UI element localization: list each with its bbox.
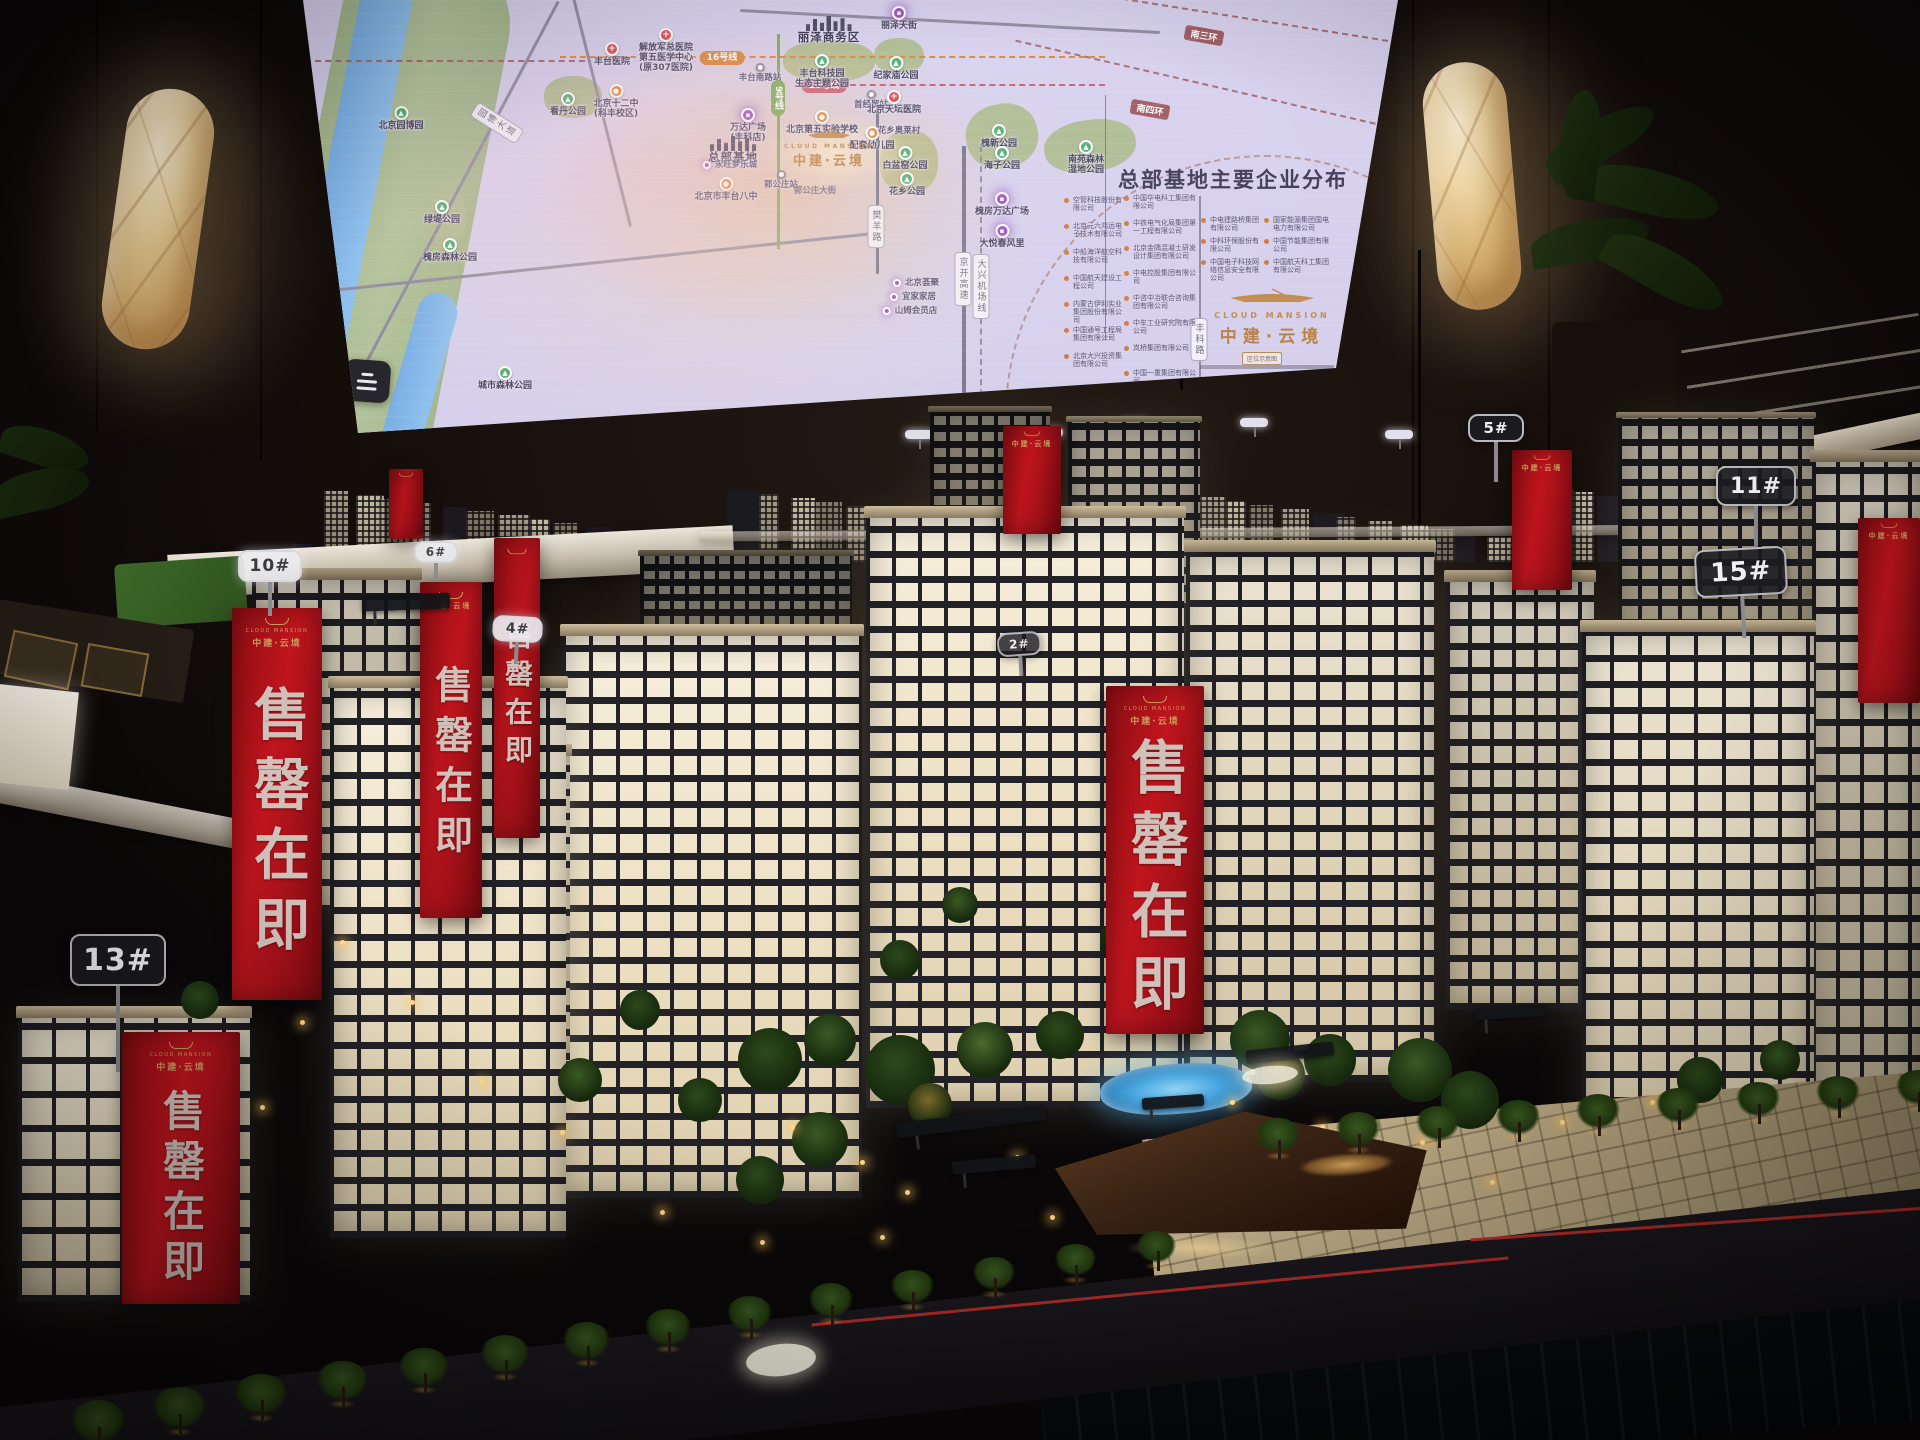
banner-brand-zh: 中建·云境 (1522, 463, 1563, 473)
palm-tree (1575, 1094, 1621, 1130)
garden-light (905, 1190, 910, 1195)
park-tree-icon: ▲ (394, 106, 408, 120)
map-label: 永旺梦乐城 (715, 160, 758, 170)
company-name: 北京金隅混凝土研发设计集团有限公司 (1133, 244, 1196, 260)
map-label: 海子公园 (984, 161, 1020, 171)
company-name: 中船海洋航空科技有限公司 (1073, 248, 1122, 264)
park-tree-icon: ▲ (815, 54, 829, 68)
company-name: 中国航天建设工程公司 (1073, 274, 1122, 290)
garden-light (560, 1130, 565, 1135)
map-label: 北京天坛医院 (867, 105, 921, 115)
company-name: 中电控股集团有限公司 (1133, 269, 1196, 285)
line-marker: 16号线 (700, 51, 745, 65)
ring-road-badge: 南三环 (1183, 25, 1224, 47)
bullet-dot-icon (1201, 260, 1206, 265)
company-list-item: 中电控股集团有限公司 (1124, 269, 1196, 285)
boat-icon (1226, 288, 1318, 304)
map-label: 绿堤公园 (424, 215, 460, 225)
company-name: 中国电子科技网络信息安全有限公司 (1210, 258, 1263, 282)
mall_s-marker: 宜家家居 (890, 292, 936, 302)
map-label: 北京市丰台八中 (694, 192, 757, 202)
garden-light (300, 1020, 305, 1025)
banner-brand-zh: 中建·云境 (1869, 531, 1910, 541)
garden-light (760, 1240, 765, 1245)
building-sign-2: 2# (997, 631, 1044, 678)
map-label: 花乡奥莱村 (878, 126, 921, 136)
company-name: 中国节能集团有限公司 (1273, 237, 1330, 253)
map-label: 北京荟聚 (905, 278, 939, 288)
company-name: 中电建路桥集团有限公司 (1210, 216, 1263, 232)
city-skyline-icon (710, 136, 756, 151)
garden-tree (181, 981, 219, 1019)
company-list-item: 中国一重集团有限公司 (1124, 369, 1196, 385)
company-name: 中科环保股份有限公司 (1210, 237, 1263, 253)
palm-tree (972, 1257, 1016, 1291)
park-tree-icon: ▲ (498, 366, 512, 380)
hosp-marker: +丰台医院 (594, 42, 630, 67)
map-label: 丰台科技园 生态主题公园 (795, 69, 849, 89)
mall-marker: ▪槐房万达广场 (975, 192, 1029, 217)
soldout-banner: CLOUD MANSION 中建·云境 售罄在即 (1106, 686, 1204, 1034)
garden-tree (1760, 1040, 1800, 1080)
building-sign-5: 5# (1468, 414, 1524, 482)
park-marker: ▲南苑森林 湿地公园 (1068, 140, 1104, 175)
palm-tree (1136, 1231, 1177, 1264)
shopping-icon (890, 293, 898, 301)
company-name: 中国通号工程局集团有限公司 (1073, 326, 1122, 342)
sales-center-scene: CLOUD MANSION 中建·云境 总部基地主要企业分布 CLOUD MAN… (0, 0, 1920, 1440)
ring-road-s3 (1112, 0, 1438, 50)
garden-light (1050, 1215, 1055, 1220)
palm-tree (152, 1387, 207, 1430)
park-marker: ▲绿堤公园 (424, 200, 460, 225)
garden-light (410, 1000, 415, 1005)
park-tree-icon: ▲ (561, 92, 575, 106)
map-label: 白盆窑公园 (882, 161, 927, 171)
company-list-item: 中国节能集团有限公司 (1264, 237, 1330, 253)
map-label: 宜家家居 (902, 292, 936, 302)
roadr-marker: 园博大道 (489, 96, 506, 150)
palm-tree (726, 1296, 773, 1333)
map-label: 南苑森林 湿地公园 (1068, 155, 1104, 175)
palm-tree (1054, 1244, 1097, 1277)
banner-message: 售罄在即 (1113, 737, 1197, 1025)
boat-icon (1534, 455, 1551, 460)
bullet-dot-icon (1124, 321, 1129, 326)
context-sign (1385, 430, 1413, 439)
boat-icon (265, 618, 289, 625)
building-sign-4: 4# (491, 615, 543, 666)
project-logo-zh: 中建·云境 (784, 150, 874, 169)
company-list-item: 中国通号工程局集团有限公司 (1064, 326, 1122, 342)
banner-brand-en: CLOUD MANSION (1124, 706, 1186, 712)
roadv-marker: 大兴机场线 (973, 254, 990, 319)
company-list-item: 中科环保股份有限公司 (1201, 237, 1263, 253)
banner-brand-zh: 中建·云境 (1012, 439, 1053, 449)
map-label: 大悦春风里 (979, 239, 1024, 249)
palm-tree (70, 1400, 126, 1440)
map-label: 城市森林公园 (478, 381, 532, 391)
garden-light (1490, 1180, 1495, 1185)
palm-tree (1255, 1118, 1301, 1154)
garden-tree (1036, 1011, 1084, 1059)
ring-marker: 南三环 (1184, 28, 1223, 43)
soldout-banner: 售罄在即 (494, 538, 540, 838)
project-logo-en: CLOUD MANSION (784, 143, 874, 150)
mall-marker: ▪大悦春风里 (979, 224, 1024, 249)
school-icon: ● (719, 177, 733, 191)
wayfinding-sign (1476, 1004, 1547, 1020)
park-marker: ▲花乡公园 (889, 172, 925, 197)
garden-light (880, 1235, 885, 1240)
company-list-item: 内蒙古伊利实业集团股份有限公司 (1064, 300, 1122, 324)
park-tree-icon: ▲ (435, 200, 449, 214)
park-tree-icon: ▲ (443, 238, 457, 252)
boat-icon (806, 127, 852, 139)
park-marker: ▲槐房森林公园 (423, 238, 477, 263)
residential-tower (1446, 582, 1594, 1010)
boat-icon (1143, 696, 1167, 703)
boat-icon (1024, 431, 1041, 436)
hospital-icon: + (659, 28, 673, 42)
map-label: 槐房万达广场 (975, 207, 1029, 217)
screen-menu-button[interactable] (343, 358, 392, 403)
metro-line-badge: 9号线 (771, 80, 785, 116)
garden-tree (558, 1058, 602, 1102)
palm-tree (1495, 1100, 1541, 1136)
company-list-item: 中船海洋航空科技有限公司 (1064, 248, 1122, 264)
panel-disclaimer-line (1200, 365, 1334, 369)
company-list-item: 中国航天科工集团有限公司 (1264, 258, 1330, 274)
shopping-icon (893, 279, 901, 287)
building-sign-6: 6# (414, 541, 458, 581)
context-sign (905, 430, 933, 439)
map-label: 北京十二中 (科丰校区) (593, 99, 638, 119)
bullet-dot-icon (1064, 354, 1069, 359)
panel-logo-en: CLOUD MANSION (1214, 311, 1330, 320)
park-tree-icon: ▲ (889, 56, 903, 70)
bullet-dot-icon (1064, 276, 1069, 281)
building-sign-10: 10# (238, 550, 302, 616)
hamburger-icon (361, 372, 373, 376)
panel-title: 总部基地主要企业分布 (1118, 164, 1348, 194)
bullet-dot-icon (1201, 239, 1206, 244)
mall_s-marker: 山姆会员店 (883, 306, 938, 316)
company-name: 岚桥集团有限公司 (1133, 344, 1189, 352)
park-tree-icon: ▲ (900, 172, 914, 186)
company-list-item: 中咨中冶联合咨询集团有限公司 (1124, 294, 1196, 310)
bullet-dot-icon (1124, 221, 1129, 226)
bullet-dot-icon (1124, 196, 1129, 201)
building-sign-15: 15# (1694, 546, 1791, 641)
garden-tree (942, 887, 978, 923)
banner-brand-zh: 中建·云境 (1130, 714, 1179, 727)
soldout-banner: CLOUD MANSION 中建·云境 售罄在即 (232, 608, 322, 1000)
mall_s-marker: 北京荟聚 (893, 278, 939, 288)
park-marker: ▲纪家庙公园 (873, 56, 918, 81)
company-list-item: 北京金隅混凝土研发设计集团有限公司 (1124, 244, 1196, 260)
shopping-icon: ▪ (995, 192, 1009, 206)
park-marker: ▲白盆窑公园 (882, 146, 927, 171)
garden-light (480, 1080, 485, 1085)
garden-light (660, 1210, 665, 1215)
soldout-banner: CLOUD MANSION 中建·云境 售罄在即 (122, 1032, 240, 1304)
linev-marker: 9号线 (771, 80, 785, 116)
bullet-dot-icon (1124, 346, 1129, 351)
company-list-item: 国家能源集团国电电力有限公司 (1264, 216, 1330, 232)
park-marker: ▲北京园博园 (378, 106, 423, 131)
city-skyline-icon (806, 16, 852, 31)
shopping-icon: ▪ (892, 6, 906, 20)
shopping-icon: ▪ (741, 108, 755, 122)
garden-light (1560, 1120, 1565, 1125)
bullet-dot-icon (1264, 260, 1269, 265)
company-list-item: 中电建路桥集团有限公司 (1201, 216, 1263, 232)
map-label: 解放军总医院 第五医学中心 (原307医院) (639, 43, 693, 73)
road-name-pill: 京开高速 (955, 252, 972, 306)
palm-tree (480, 1335, 530, 1375)
bullet-dot-icon (1264, 239, 1269, 244)
lawn-patch (114, 556, 248, 629)
company-name: 中车工业研究院有限公司 (1133, 319, 1196, 335)
roadt-marker: 郭公庄大街 (794, 184, 837, 196)
building-sign-11: 11# (1716, 466, 1796, 550)
bullet-dot-icon (1124, 371, 1129, 376)
school-icon: ● (609, 84, 623, 98)
boat-icon (507, 549, 526, 555)
map-label: 丽泽商务区 (798, 32, 861, 42)
bullet-dot-icon (1064, 198, 1069, 203)
sch-marker: ●北京十二中 (科丰校区) (593, 84, 638, 119)
shopping-icon (883, 307, 891, 315)
garden-tree (736, 1156, 784, 1204)
wayfinding-sign (952, 1154, 1037, 1174)
hosp-marker: +北京天坛医院 (867, 90, 921, 115)
palm-tree (808, 1283, 854, 1319)
lit-display-board (0, 684, 79, 790)
boat-icon (169, 1042, 193, 1049)
palm-tree (890, 1270, 935, 1305)
company-name: 北京大兴投资集团有限公司 (1073, 352, 1122, 368)
framed-board (81, 643, 150, 697)
bullet-dot-icon (1201, 218, 1206, 223)
school-icon: ● (815, 110, 829, 124)
company-name: 中国华电科工集团有限公司 (1133, 194, 1196, 210)
company-list-item: 中铁电气化局集团第一工程有限公司 (1124, 219, 1196, 235)
company-list-item: 北京大兴投资集团有限公司 (1064, 352, 1122, 368)
bullet-dot-icon (1064, 328, 1069, 333)
sch-marker: ●北京市丰台八中 (694, 177, 757, 202)
company-name: 空管科技股份有限公司 (1073, 196, 1122, 212)
bullet-dot-icon (1264, 218, 1269, 223)
bullet-dot-icon (1064, 250, 1069, 255)
garden-light (340, 940, 345, 945)
company-list-item: 岚桥集团有限公司 (1124, 344, 1196, 352)
company-list-item: 中车工业研究院有限公司 (1124, 319, 1196, 335)
map-label: 山姆会员店 (895, 306, 938, 316)
palm-tree (316, 1361, 369, 1402)
ring-road-badge: 南四环 (1129, 99, 1170, 121)
palm-tree (644, 1309, 692, 1347)
palm-tree (398, 1348, 450, 1388)
roadv-marker: 樊羊路 (868, 205, 885, 248)
soldout-banner-side: 中建·云境 (1003, 426, 1061, 534)
soldout-banner-side (389, 469, 423, 539)
banner-brand-en: CLOUD MANSION (246, 628, 308, 634)
garden-tree (620, 990, 660, 1030)
hospital-icon: + (887, 90, 901, 104)
company-list-item: 中国华电科工集团有限公司 (1124, 194, 1196, 210)
hamburger-icon (356, 386, 376, 390)
residential-tower (1186, 552, 1434, 1082)
park-tree-icon: ▲ (1079, 140, 1093, 154)
park-marker: ▲丰台科技园 生态主题公园 (795, 54, 849, 89)
metro-station-icon (755, 63, 764, 72)
soldout-banner-side: 中建·云境 (1858, 518, 1920, 703)
company-name: 中国一重集团有限公司 (1133, 369, 1196, 385)
panel-note: 区位示意图 (1242, 352, 1282, 365)
company-name: 内蒙古伊利实业集团股份有限公司 (1073, 300, 1122, 324)
project-logo-on-map: CLOUD MANSION 中建·云境 (784, 124, 874, 169)
garden-tree (957, 1022, 1013, 1078)
park-tree-icon: ▲ (898, 146, 912, 160)
map-label: 纪家庙公园 (873, 71, 918, 81)
hosp-marker: +解放军总医院 第五医学中心 (原307医院) (639, 28, 693, 73)
company-list-item: 北京元六鸿远电子技术有限公司 (1064, 222, 1122, 238)
city_s-marker: 花乡奥莱村 (878, 126, 921, 136)
garden-tree (804, 1014, 856, 1066)
palm-tree (1655, 1088, 1701, 1124)
map-label: 花乡公园 (889, 187, 925, 197)
ring-road (305, 60, 585, 62)
mall_s-marker: 永旺梦乐城 (703, 160, 758, 170)
palm-tree (1415, 1106, 1461, 1142)
roadv-marker: 京开高速 (955, 252, 972, 306)
metro-line-badge: 16号线 (700, 51, 745, 65)
banner-message: 售罄在即 (237, 685, 318, 965)
city-marker: 总部基地 (708, 136, 758, 162)
garden-tree (738, 1028, 802, 1092)
boat-icon (399, 472, 413, 476)
company-name: 中咨中冶联合咨询集团有限公司 (1133, 294, 1196, 310)
garden-tree (880, 940, 920, 980)
palm-tree (562, 1322, 611, 1361)
map-label: 看丹公园 (550, 107, 586, 117)
plant-leaf (1598, 220, 1733, 323)
park-marker: ▲看丹公园 (550, 92, 586, 117)
palm-tree (1335, 1112, 1381, 1148)
palm-tree (234, 1374, 288, 1416)
map-label: 丰台医院 (594, 57, 630, 67)
company-list-item: 空管科技股份有限公司 (1064, 196, 1122, 212)
garden-light (790, 1125, 795, 1130)
city-marker: 丽泽商务区 (798, 16, 861, 42)
park-marker: ▲海子公园 (984, 146, 1020, 171)
banner-brand-zh: 中建·云境 (252, 636, 301, 649)
panel-brand-logo: CLOUD MANSION 中建·云境 (1214, 288, 1330, 347)
plant-leaf (0, 460, 93, 520)
park-tree-icon: ▲ (992, 124, 1006, 138)
boat-icon (1881, 523, 1898, 528)
building-sign-13: 13# (70, 934, 166, 1072)
banner-message: 售罄在即 (151, 1089, 212, 1289)
panel-logo-zh: 中建·云境 (1214, 322, 1330, 347)
garden-tree (678, 1078, 722, 1122)
park-tree-icon: ▲ (995, 146, 1009, 160)
banner-message: 售罄在即 (424, 665, 479, 865)
bullet-dot-icon (1064, 224, 1069, 229)
company-name: 中国航天科工集团有限公司 (1273, 258, 1330, 274)
ring-marker: 南四环 (1130, 102, 1169, 117)
garden-light (1230, 1100, 1235, 1105)
park-marker: ▲城市森林公园 (478, 366, 532, 391)
map-label: 北京园博园 (378, 121, 423, 131)
context-sign (1240, 418, 1268, 427)
company-name: 中铁电气化局集团第一工程有限公司 (1133, 219, 1196, 235)
company-name: 北京元六鸿远电子技术有限公司 (1073, 222, 1122, 238)
mall-marker: ▪丽泽天街 (881, 6, 917, 31)
palm-tree (1735, 1082, 1781, 1118)
metro-station-icon (776, 170, 785, 179)
bullet-dot-icon (1124, 246, 1129, 251)
map-label: 槐房森林公园 (423, 253, 477, 263)
garden-light (860, 1160, 865, 1165)
shopping-icon (703, 161, 711, 169)
garden-tree (792, 1112, 848, 1168)
bullet-dot-icon (1124, 296, 1129, 301)
company-list-item: 中国电子科技网络信息安全有限公司 (1201, 258, 1263, 282)
bullet-dot-icon (1064, 302, 1069, 307)
company-name: 国家能源集团国电电力有限公司 (1273, 216, 1330, 232)
road-name-pill: 大兴机场线 (973, 254, 990, 319)
bullet-dot-icon (1124, 271, 1129, 276)
garden-light (260, 1105, 265, 1110)
context-building (1455, 533, 1475, 562)
shopping-icon: ▪ (995, 224, 1009, 238)
map-label: 丽泽天街 (881, 21, 917, 31)
palm-tree (1815, 1076, 1861, 1112)
road-name-pill: 樊羊路 (868, 205, 885, 248)
soldout-banner: 中建·云境 售罄在即 (420, 582, 482, 918)
context-building (1487, 537, 1511, 562)
road-name-text: 郭公庄大街 (794, 184, 837, 196)
hospital-icon: + (605, 42, 619, 56)
hamburger-icon (357, 379, 377, 383)
wayfinding-sign (362, 592, 451, 611)
company-list-item: 中国航天建设工程公司 (1064, 274, 1122, 290)
